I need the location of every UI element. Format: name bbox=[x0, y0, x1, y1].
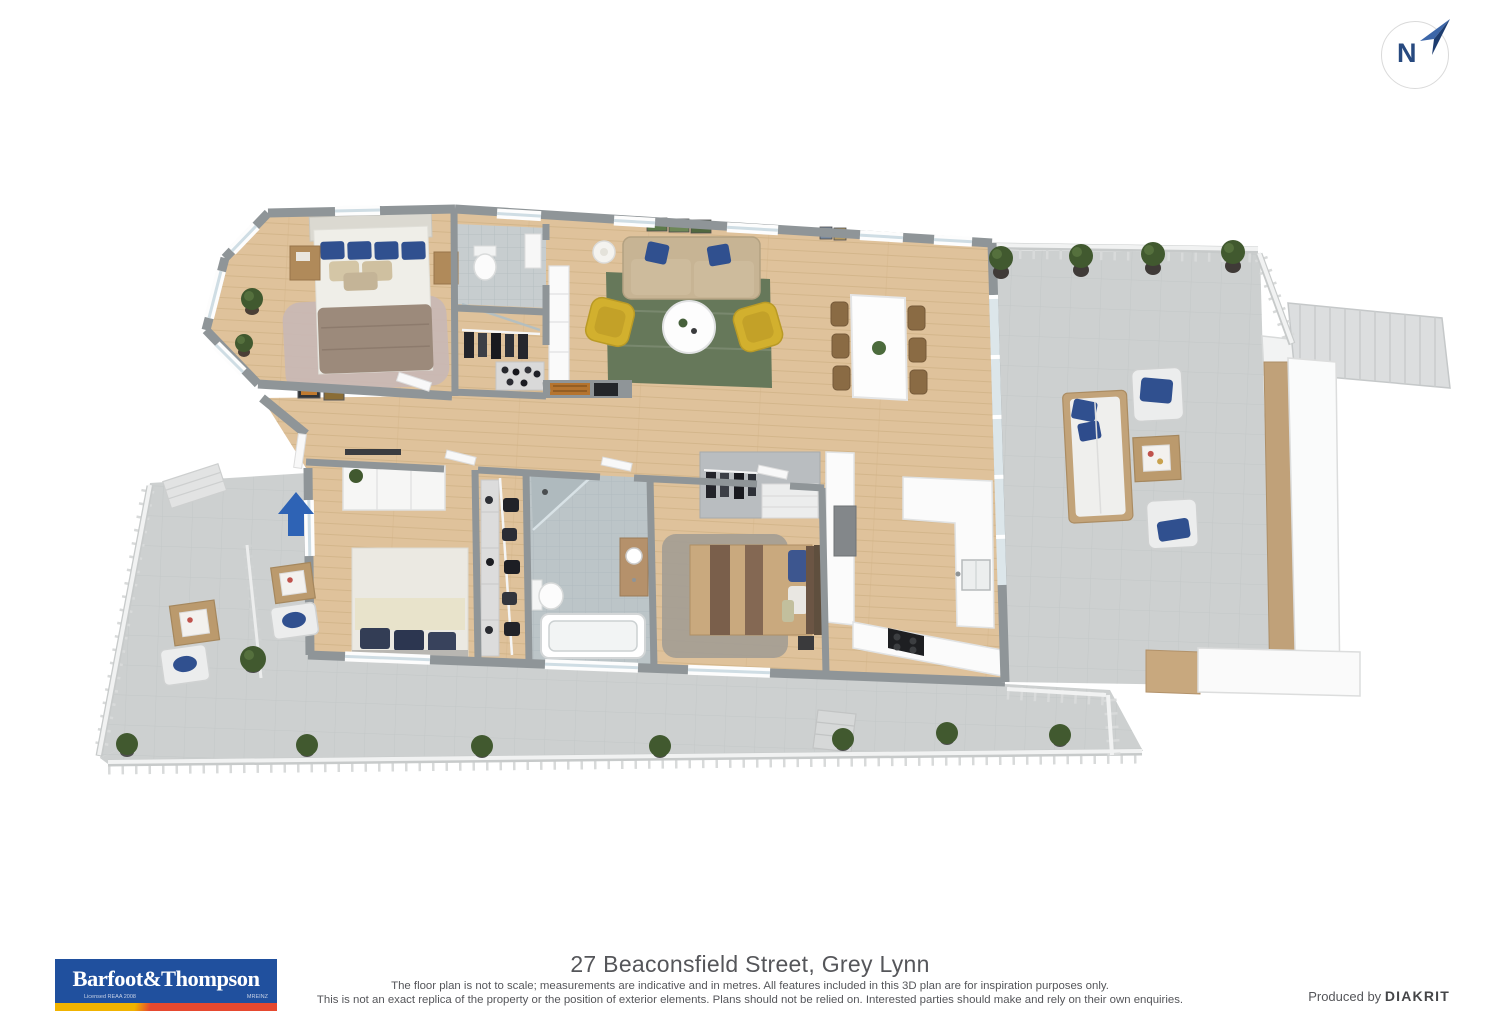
fireplace-wall bbox=[543, 380, 632, 398]
pillow bbox=[394, 630, 424, 651]
shower-head bbox=[542, 489, 548, 495]
planter-wall-right bbox=[1264, 358, 1340, 692]
floor-plan-page: N Barfoot&Thompson Licensed REAA 2008 MR… bbox=[0, 0, 1500, 1028]
producer-name: DIAKRIT bbox=[1385, 988, 1450, 1004]
toilet-basin bbox=[525, 234, 541, 268]
disclaimer-line-1: The floor plan is not to scale; measurem… bbox=[0, 980, 1500, 992]
nightstand-tray bbox=[296, 252, 310, 261]
disclaimer-line-2: This is not an exact replica of the prop… bbox=[0, 994, 1500, 1006]
toilet-bowl bbox=[474, 254, 496, 280]
floor-plan-rendering bbox=[0, 0, 1500, 940]
pillow bbox=[782, 600, 794, 622]
railing-stair-side bbox=[1259, 253, 1292, 344]
stool bbox=[798, 636, 814, 650]
outdoor-sofa bbox=[1062, 390, 1133, 523]
outdoor-armchair bbox=[1146, 499, 1198, 550]
pillow bbox=[428, 632, 456, 653]
pillow bbox=[788, 550, 808, 582]
wardrobe-plant bbox=[349, 469, 363, 483]
tv-unit bbox=[345, 449, 401, 455]
floor-lamp bbox=[593, 241, 615, 263]
outdoor-armchair bbox=[1131, 367, 1184, 422]
north-arrow-icon bbox=[1414, 15, 1454, 59]
bathtub bbox=[541, 614, 645, 658]
master-bed bbox=[309, 213, 436, 374]
shoe-shelf bbox=[496, 362, 544, 390]
vanity bbox=[620, 538, 648, 596]
pillow bbox=[360, 628, 390, 649]
outdoor-coffee-table bbox=[1133, 435, 1181, 481]
bench-bottom-right bbox=[1146, 648, 1360, 696]
coffee-table-round bbox=[663, 301, 715, 353]
sofa-pillow bbox=[706, 243, 731, 267]
table-centerpiece bbox=[872, 341, 886, 355]
produced-by: Produced by DIAKRIT bbox=[1308, 988, 1450, 1004]
dining-area bbox=[831, 295, 927, 400]
faucet bbox=[956, 572, 961, 577]
media-unit bbox=[594, 383, 618, 396]
bed-2 bbox=[352, 548, 468, 659]
nightstand-left bbox=[290, 246, 320, 280]
hanging-clothes bbox=[464, 332, 528, 359]
sofa bbox=[623, 237, 760, 299]
compass-north-indicator: N bbox=[1381, 21, 1449, 89]
bed-3 bbox=[690, 545, 822, 635]
page-title: 27 Beaconsfield Street, Grey Lynn bbox=[0, 951, 1500, 978]
produced-by-label: Produced by bbox=[1308, 989, 1381, 1004]
fridge bbox=[834, 506, 856, 556]
firewood-niche bbox=[550, 383, 590, 395]
shelf-cabinet bbox=[549, 266, 569, 384]
